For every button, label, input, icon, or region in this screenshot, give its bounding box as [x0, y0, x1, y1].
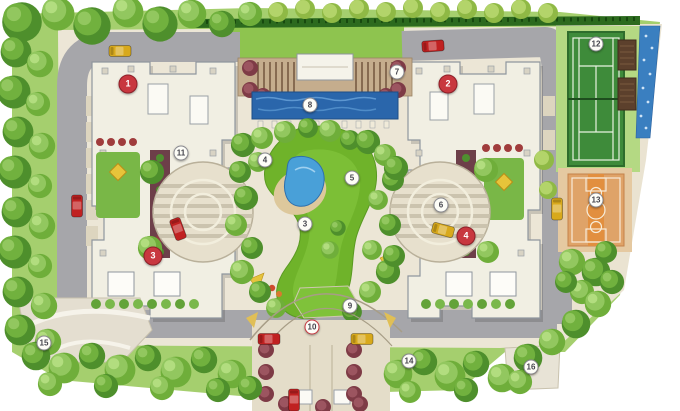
car-red — [289, 389, 300, 411]
tower-marker-2[interactable]: 2 — [439, 75, 458, 94]
car-red — [422, 40, 445, 53]
car-red — [258, 334, 280, 345]
car-yellow — [552, 198, 563, 220]
siteplan-illustration — [0, 0, 680, 411]
basketball-court — [558, 168, 632, 252]
tower-marker-4[interactable]: 4 — [457, 227, 476, 246]
water-cascade — [636, 26, 660, 138]
car-yellow — [351, 334, 373, 345]
amenity-marker-basketball-court[interactable]: 13 — [589, 193, 604, 208]
amenity-marker-tennis-court[interactable]: 12 — [589, 37, 604, 52]
siteplan-canvas: 1 2 3 4 3 4 5 6 7 8 9 10 11 12 13 14 15 … — [0, 0, 680, 411]
amenity-marker-southeast-court[interactable]: 16 — [524, 360, 539, 375]
amenity-marker-pond-grove[interactable]: 4 — [258, 153, 273, 168]
amenity-marker-entry-lawn[interactable]: 9 — [343, 299, 358, 314]
amenity-marker-east-plaza[interactable]: 6 — [434, 198, 449, 213]
amenity-marker-entry-court[interactable]: 10 — [305, 320, 320, 335]
amenity-marker-east-tree-walk[interactable]: 14 — [402, 354, 417, 369]
amenity-marker-east-lawn[interactable]: 5 — [345, 171, 360, 186]
amenity-marker-clubhouse[interactable]: 7 — [390, 65, 405, 80]
tower-marker-3[interactable]: 3 — [144, 247, 163, 266]
amenity-marker-southwest-plaza[interactable]: 15 — [37, 336, 52, 351]
amenity-marker-central-lawn[interactable]: 3 — [298, 217, 313, 232]
amenity-marker-west-plaza[interactable]: 11 — [174, 146, 189, 161]
tower-marker-1[interactable]: 1 — [119, 75, 138, 94]
amenity-marker-reflecting-pool[interactable]: 8 — [303, 98, 318, 113]
car-yellow — [109, 46, 131, 57]
car-red — [72, 195, 83, 217]
